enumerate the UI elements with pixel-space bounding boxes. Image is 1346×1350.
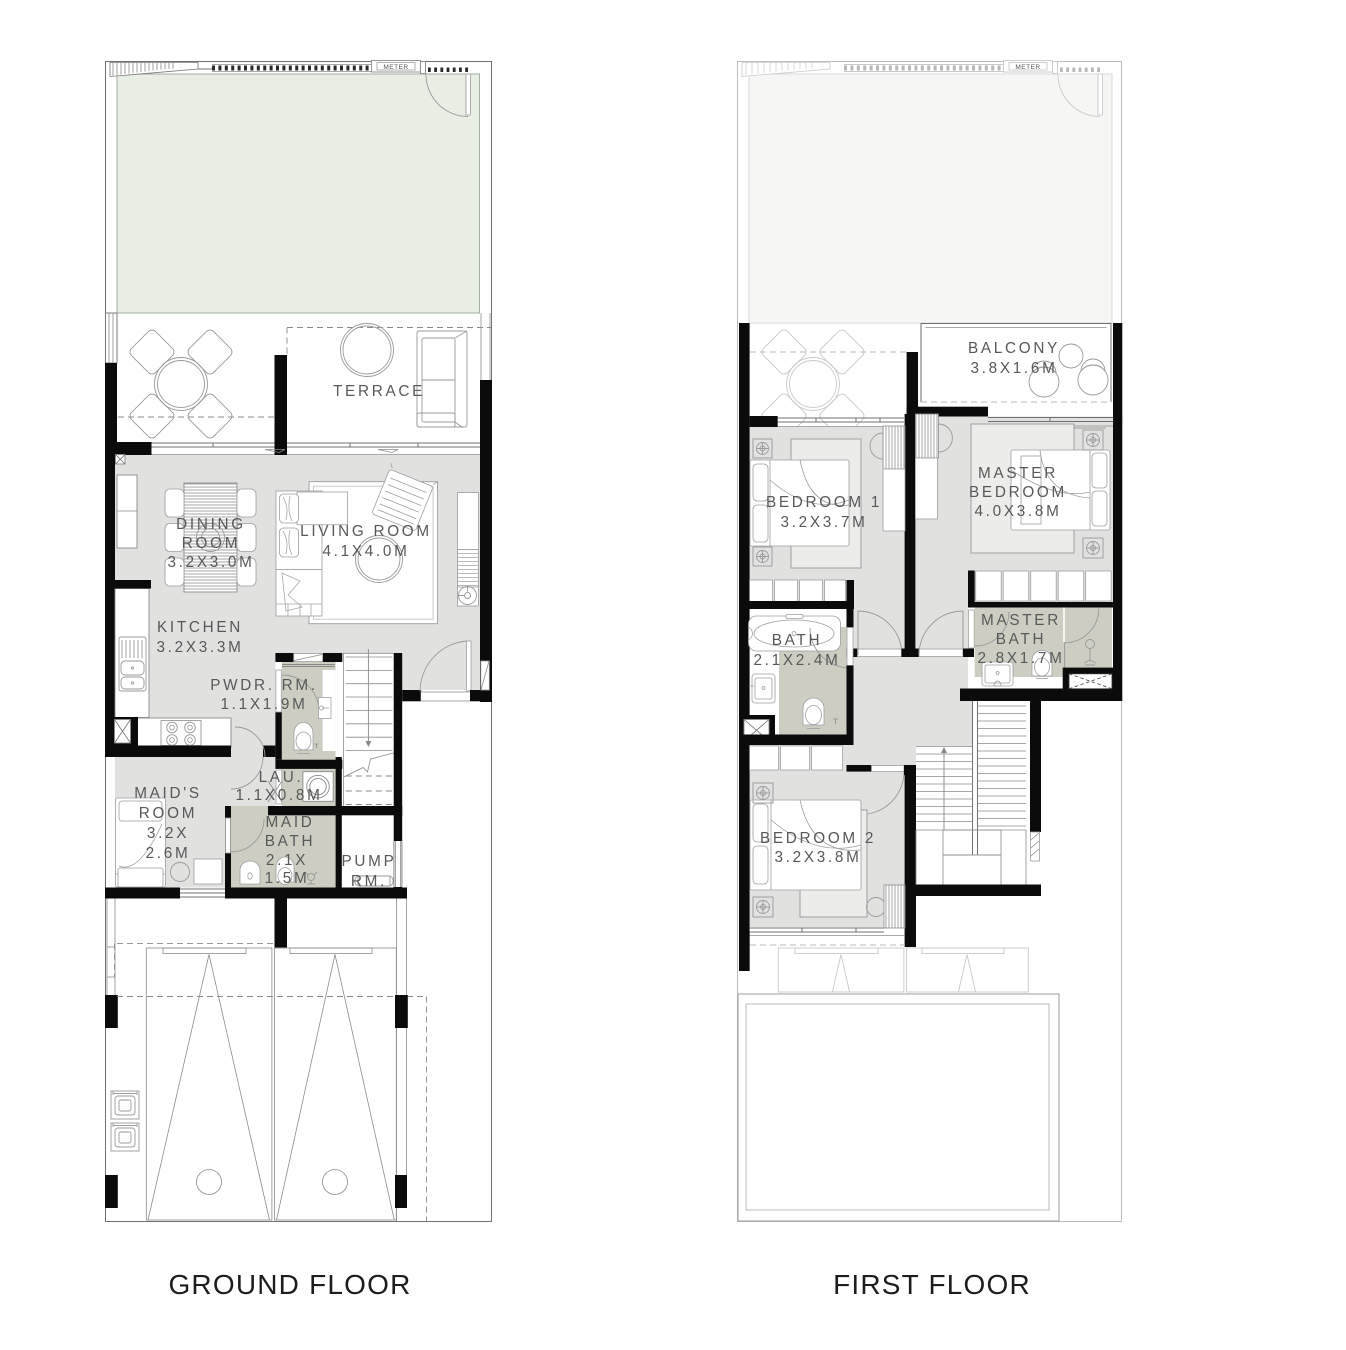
svg-text:BATH: BATH <box>772 632 822 649</box>
svg-text:RM.: RM. <box>351 873 387 890</box>
svg-text:BEDROOM 2: BEDROOM 2 <box>760 830 876 847</box>
svg-text:3.2X: 3.2X <box>147 825 189 842</box>
svg-text:3.2X3.3M: 3.2X3.3M <box>156 639 243 656</box>
svg-text:METER: METER <box>1015 64 1040 71</box>
svg-text:DINING: DINING <box>176 516 246 533</box>
svg-text:1.1X1.9M: 1.1X1.9M <box>220 696 307 713</box>
svg-text:2.6M: 2.6M <box>146 845 191 862</box>
svg-text:PUMP: PUMP <box>342 853 397 870</box>
svg-text:2.8X1.7M: 2.8X1.7M <box>977 650 1064 667</box>
svg-text:KITCHEN: KITCHEN <box>157 619 243 636</box>
svg-text:METER: METER <box>383 64 408 71</box>
svg-text:MAID: MAID <box>265 814 314 831</box>
svg-text:2.1X2.4M: 2.1X2.4M <box>753 652 840 669</box>
svg-text:PWDR. RM.: PWDR. RM. <box>210 677 318 694</box>
svg-text:FIRST FLOOR: FIRST FLOOR <box>833 1269 1031 1300</box>
svg-text:3.2X3.0M: 3.2X3.0M <box>167 554 254 571</box>
svg-text:1.5M: 1.5M <box>265 870 310 887</box>
svg-text:GROUND FLOOR: GROUND FLOOR <box>168 1269 411 1300</box>
svg-text:BATH: BATH <box>996 631 1046 648</box>
svg-text:4.0X3.8M: 4.0X3.8M <box>974 503 1061 520</box>
svg-text:BEDROOM: BEDROOM <box>969 484 1067 501</box>
svg-text:3.8X1.6M: 3.8X1.6M <box>970 360 1057 377</box>
svg-text:BATH: BATH <box>265 833 315 850</box>
svg-text:LIVING ROOM: LIVING ROOM <box>300 523 432 540</box>
svg-text:3.2X3.8M: 3.2X3.8M <box>774 849 861 866</box>
svg-text:TERRACE: TERRACE <box>333 383 425 400</box>
svg-text:MASTER: MASTER <box>981 612 1061 629</box>
svg-text:4.1X4.0M: 4.1X4.0M <box>322 543 409 560</box>
svg-text:MAID'S: MAID'S <box>134 785 202 802</box>
svg-text:MASTER: MASTER <box>978 465 1058 482</box>
svg-text:ROOM: ROOM <box>182 535 240 552</box>
svg-text:2.1X: 2.1X <box>266 852 308 869</box>
svg-text:3.2X3.7M: 3.2X3.7M <box>780 514 867 531</box>
svg-text:ROOM: ROOM <box>139 805 197 822</box>
svg-text:BEDROOM 1: BEDROOM 1 <box>766 494 882 511</box>
svg-text:BALCONY: BALCONY <box>968 340 1060 357</box>
svg-text:LAU.: LAU. <box>259 769 304 786</box>
svg-text:1.1X0.8M: 1.1X0.8M <box>235 787 322 804</box>
